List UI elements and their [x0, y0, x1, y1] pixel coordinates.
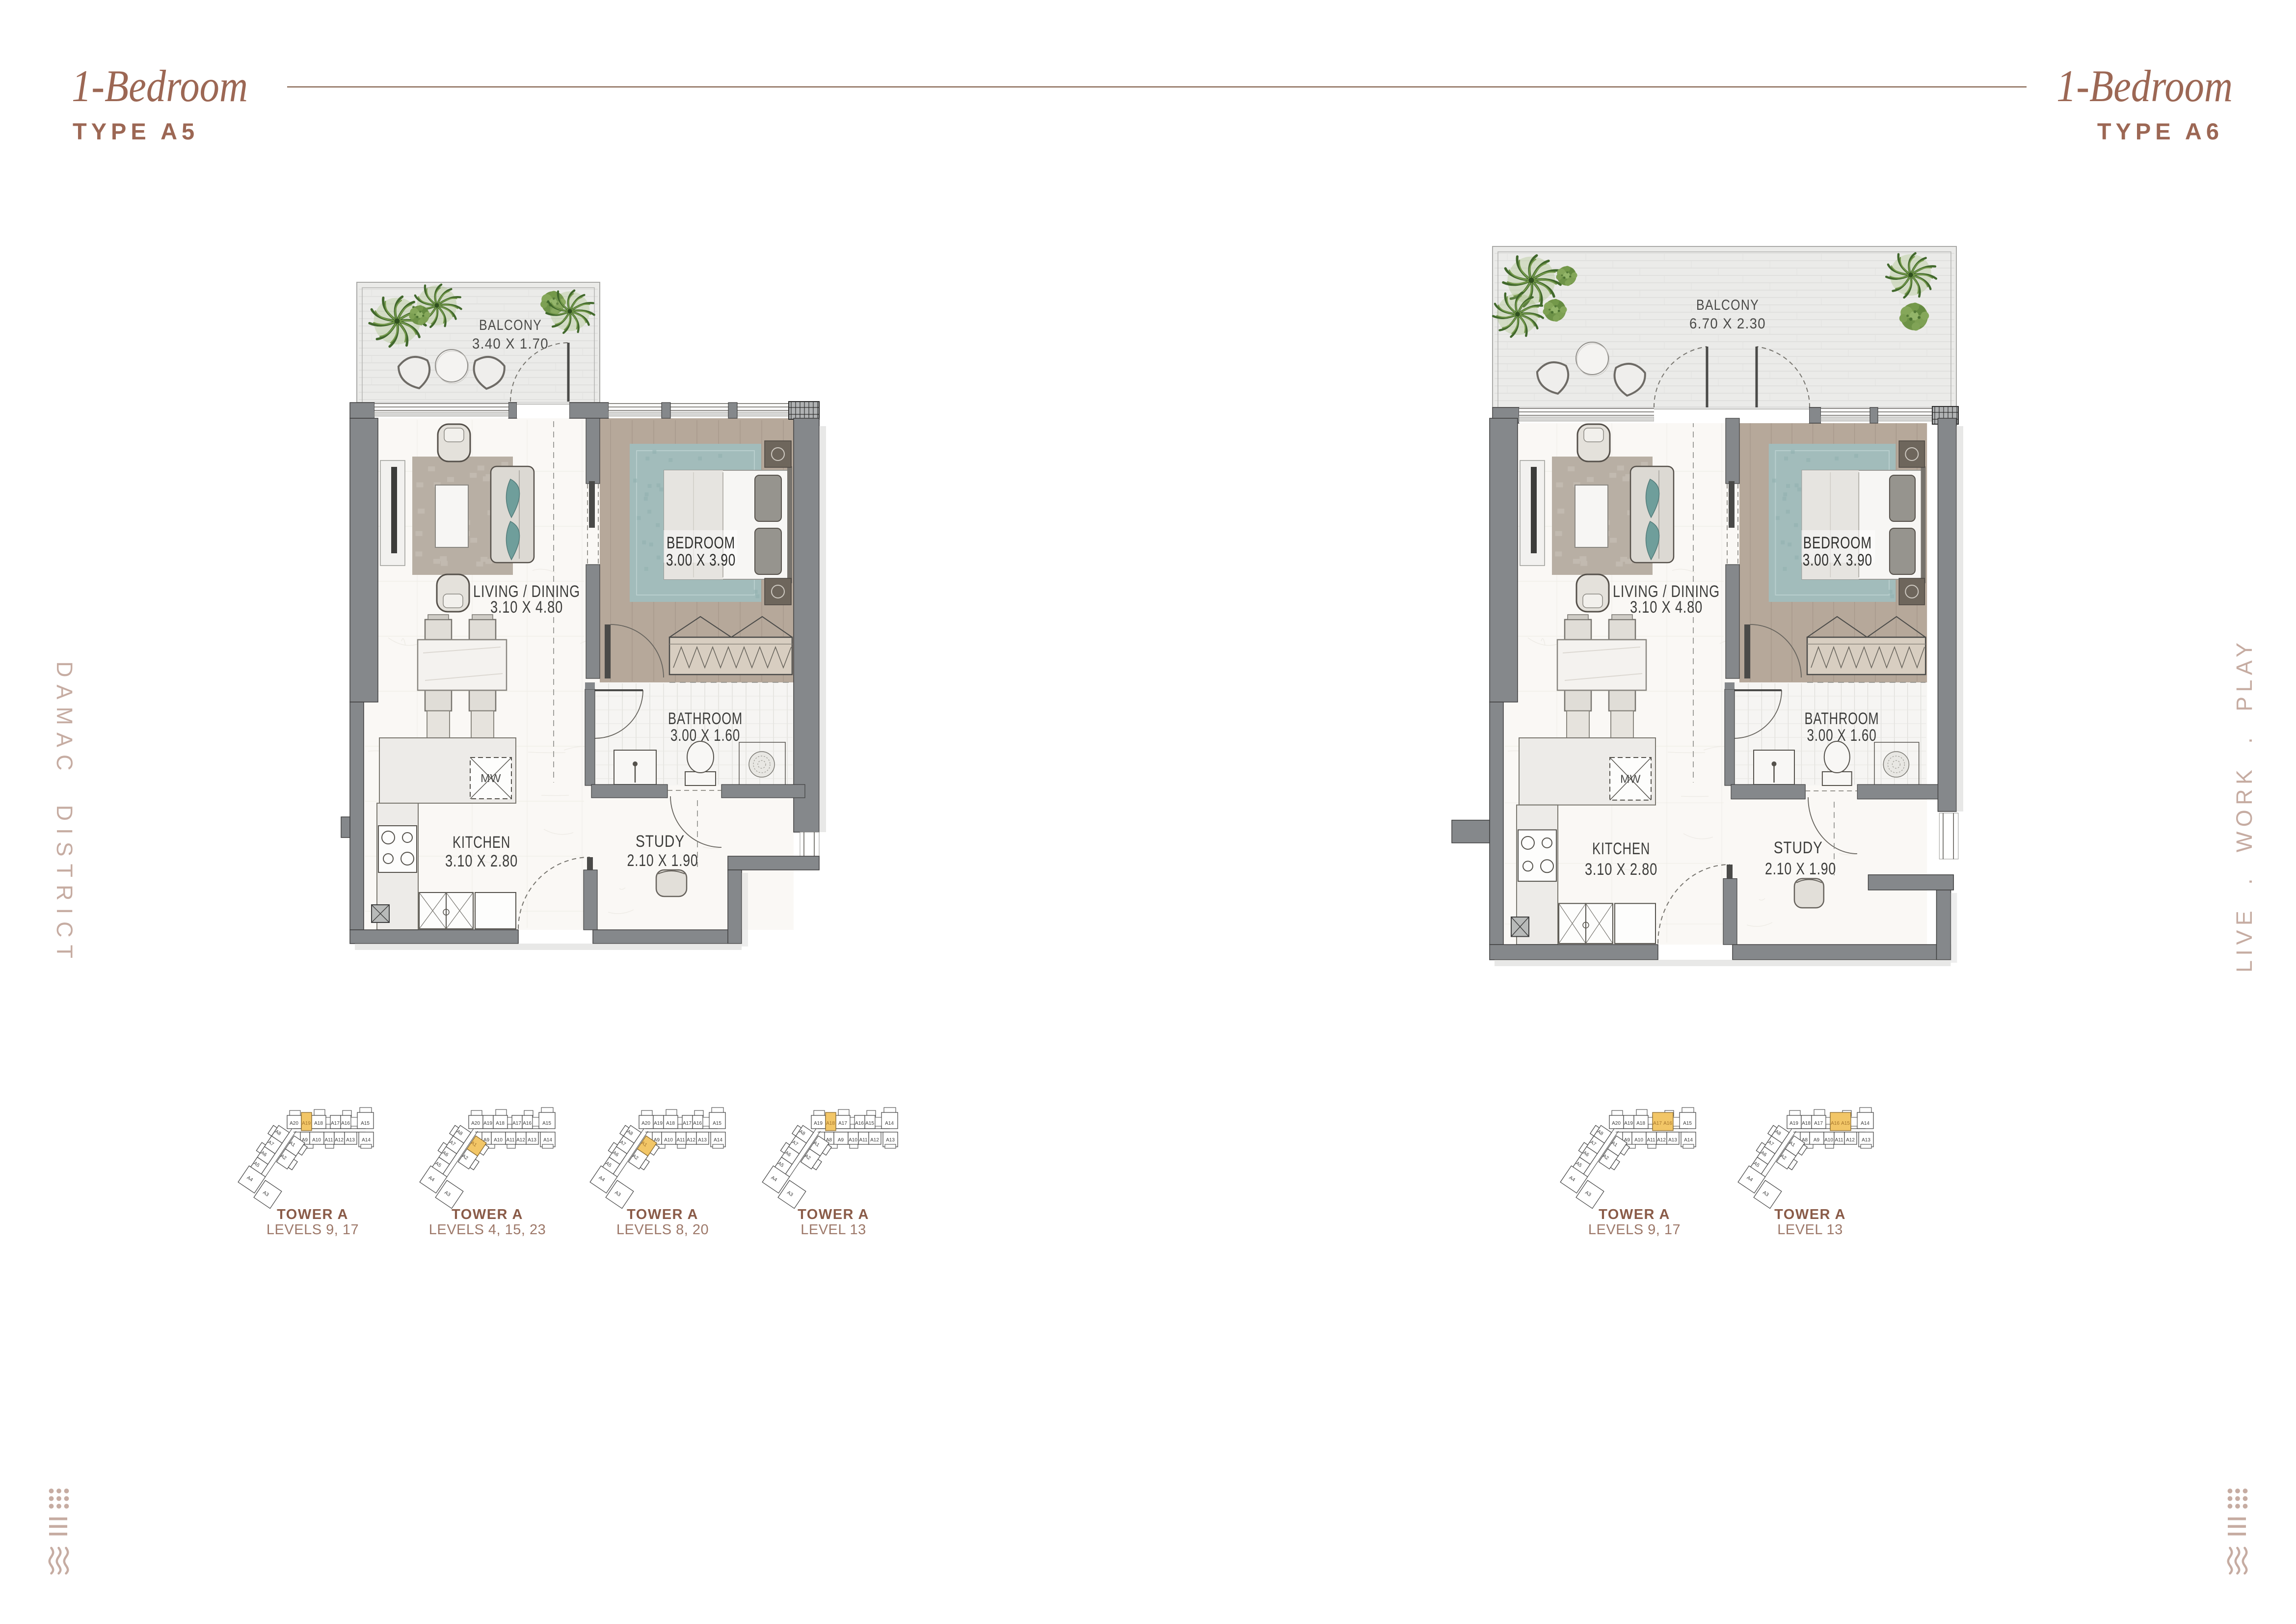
svg-text:A12: A12 — [870, 1137, 879, 1143]
svg-text:A18: A18 — [1636, 1121, 1645, 1126]
svg-text:KITCHEN: KITCHEN — [1592, 839, 1650, 858]
svg-text:A15: A15 — [361, 1121, 370, 1126]
svg-text:A20: A20 — [1612, 1121, 1621, 1126]
svg-text:A17: A17 — [512, 1121, 521, 1126]
svg-text:A11: A11 — [859, 1137, 867, 1143]
svg-text:A18: A18 — [826, 1121, 835, 1126]
svg-text:A14: A14 — [1684, 1137, 1693, 1143]
svg-text:A8: A8 — [1802, 1137, 1808, 1143]
svg-text:A12: A12 — [1846, 1137, 1855, 1143]
svg-text:1-Bedroom: 1-Bedroom — [2056, 61, 2233, 111]
svg-text:A15: A15 — [1683, 1121, 1692, 1126]
svg-text:A16: A16 — [523, 1121, 532, 1126]
svg-text:A18: A18 — [496, 1121, 505, 1126]
svg-text:A19: A19 — [814, 1121, 823, 1126]
svg-text:6.70 X 2.30: 6.70 X 2.30 — [1689, 316, 1766, 332]
svg-text:A11: A11 — [324, 1137, 333, 1143]
svg-text:A20: A20 — [471, 1121, 480, 1126]
svg-text:A13: A13 — [886, 1137, 895, 1143]
svg-text:A10: A10 — [494, 1137, 503, 1143]
svg-text:3.10 X 4.80: 3.10 X 4.80 — [490, 598, 563, 617]
svg-text:A15: A15 — [713, 1121, 721, 1126]
svg-text:BEDROOM: BEDROOM — [667, 534, 735, 552]
svg-text:MW: MW — [1620, 772, 1641, 785]
svg-text:A20: A20 — [290, 1121, 298, 1126]
svg-text:LEVEL 13: LEVEL 13 — [1777, 1222, 1843, 1238]
svg-text:A11: A11 — [676, 1137, 685, 1143]
svg-text:A18: A18 — [1802, 1121, 1811, 1126]
svg-text:A14: A14 — [543, 1137, 552, 1143]
svg-text:A16: A16 — [855, 1121, 864, 1126]
svg-text:LIVE . WORK . PLAY: LIVE . WORK . PLAY — [2232, 639, 2257, 973]
svg-text:TYPE A5: TYPE A5 — [73, 118, 199, 144]
svg-text:A12: A12 — [335, 1137, 344, 1143]
svg-text:1-Bedroom: 1-Bedroom — [72, 61, 248, 111]
svg-text:TOWER A: TOWER A — [1774, 1207, 1846, 1222]
svg-text:A10: A10 — [664, 1137, 673, 1143]
svg-text:A8: A8 — [826, 1137, 832, 1143]
svg-text:A14: A14 — [714, 1137, 722, 1143]
svg-text:A19: A19 — [654, 1121, 663, 1126]
svg-text:A15: A15 — [1841, 1121, 1850, 1126]
svg-text:3.00 X 1.60: 3.00 X 1.60 — [670, 726, 740, 745]
svg-text:A12: A12 — [516, 1137, 525, 1143]
svg-text:A11: A11 — [506, 1137, 514, 1143]
svg-text:A16: A16 — [341, 1121, 350, 1126]
svg-text:A13: A13 — [698, 1137, 707, 1143]
svg-text:A19: A19 — [483, 1121, 492, 1126]
svg-text:TOWER A: TOWER A — [1599, 1207, 1670, 1222]
svg-text:A19: A19 — [1624, 1121, 1633, 1126]
svg-text:A10: A10 — [1824, 1137, 1833, 1143]
svg-text:A17: A17 — [331, 1121, 340, 1126]
svg-text:A16: A16 — [1663, 1121, 1672, 1126]
svg-text:BALCONY: BALCONY — [479, 317, 542, 333]
svg-text:LEVELS 8, 20: LEVELS 8, 20 — [616, 1222, 709, 1238]
svg-text:TOWER A: TOWER A — [627, 1207, 698, 1222]
svg-text:3.00 X 3.90: 3.00 X 3.90 — [1803, 551, 1872, 569]
svg-text:A15: A15 — [542, 1121, 551, 1126]
svg-text:A9: A9 — [302, 1137, 308, 1143]
svg-text:3.40 X 1.70: 3.40 X 1.70 — [472, 336, 549, 352]
svg-text:STUDY: STUDY — [636, 832, 685, 851]
svg-text:A13: A13 — [528, 1137, 536, 1143]
svg-text:A14: A14 — [885, 1121, 894, 1126]
svg-text:A11: A11 — [1835, 1137, 1843, 1143]
svg-text:A9: A9 — [838, 1137, 844, 1143]
svg-text:A9: A9 — [483, 1137, 490, 1143]
svg-text:2.10 X 1.90: 2.10 X 1.90 — [627, 851, 698, 870]
svg-text:LEVEL 13: LEVEL 13 — [801, 1222, 866, 1238]
svg-text:A15: A15 — [865, 1121, 874, 1126]
svg-text:A16: A16 — [693, 1121, 702, 1126]
svg-text:A17: A17 — [683, 1121, 692, 1126]
svg-text:A12: A12 — [687, 1137, 695, 1143]
svg-text:A10: A10 — [1634, 1137, 1643, 1143]
svg-text:A13: A13 — [1862, 1137, 1870, 1143]
svg-text:DAMAC DISTRICT: DAMAC DISTRICT — [52, 661, 77, 963]
svg-text:A20: A20 — [641, 1121, 650, 1126]
svg-text:A14: A14 — [362, 1137, 371, 1143]
svg-text:A19: A19 — [302, 1121, 311, 1126]
svg-text:A16: A16 — [1831, 1121, 1840, 1126]
svg-text:LEVELS 9, 17: LEVELS 9, 17 — [267, 1222, 359, 1238]
svg-text:TOWER A: TOWER A — [452, 1207, 523, 1222]
svg-text:3.00 X 1.60: 3.00 X 1.60 — [1807, 726, 1877, 745]
svg-text:KITCHEN: KITCHEN — [453, 833, 510, 852]
svg-text:A19: A19 — [1789, 1121, 1798, 1126]
svg-text:A10: A10 — [312, 1137, 321, 1143]
svg-text:A17: A17 — [1814, 1121, 1823, 1126]
svg-text:A9: A9 — [654, 1137, 660, 1143]
svg-text:A13: A13 — [346, 1137, 355, 1143]
svg-text:3.10 X 4.80: 3.10 X 4.80 — [1630, 598, 1703, 617]
svg-text:MW: MW — [481, 772, 501, 785]
svg-text:A9: A9 — [1624, 1137, 1630, 1143]
svg-text:LEVELS 9, 17: LEVELS 9, 17 — [1588, 1222, 1681, 1238]
svg-text:3.10 X 2.80: 3.10 X 2.80 — [1585, 860, 1657, 879]
svg-text:A11: A11 — [1647, 1137, 1655, 1143]
svg-text:A14: A14 — [1861, 1121, 1869, 1126]
svg-text:TYPE A6: TYPE A6 — [2097, 118, 2223, 144]
svg-text:BALCONY: BALCONY — [1696, 297, 1759, 313]
svg-text:3.10 X 2.80: 3.10 X 2.80 — [445, 852, 518, 870]
svg-text:TOWER A: TOWER A — [798, 1207, 869, 1222]
svg-text:A17: A17 — [838, 1121, 847, 1126]
svg-text:A18: A18 — [314, 1121, 323, 1126]
svg-text:A17: A17 — [1653, 1121, 1662, 1126]
svg-text:A13: A13 — [1668, 1137, 1677, 1143]
svg-text:A18: A18 — [666, 1121, 675, 1126]
svg-text:A9: A9 — [1814, 1137, 1820, 1143]
svg-text:BATHROOM: BATHROOM — [668, 709, 743, 728]
svg-text:BEDROOM: BEDROOM — [1803, 534, 1872, 552]
svg-text:2.10 X 1.90: 2.10 X 1.90 — [1765, 860, 1836, 878]
svg-text:BATHROOM: BATHROOM — [1805, 709, 1879, 728]
svg-text:LEVELS 4, 15, 23: LEVELS 4, 15, 23 — [429, 1222, 546, 1238]
svg-text:3.00 X 3.90: 3.00 X 3.90 — [666, 551, 736, 569]
svg-text:STUDY: STUDY — [1774, 839, 1823, 857]
svg-text:A12: A12 — [1657, 1137, 1666, 1143]
svg-text:A10: A10 — [849, 1137, 857, 1143]
svg-text:TOWER A: TOWER A — [277, 1207, 348, 1222]
